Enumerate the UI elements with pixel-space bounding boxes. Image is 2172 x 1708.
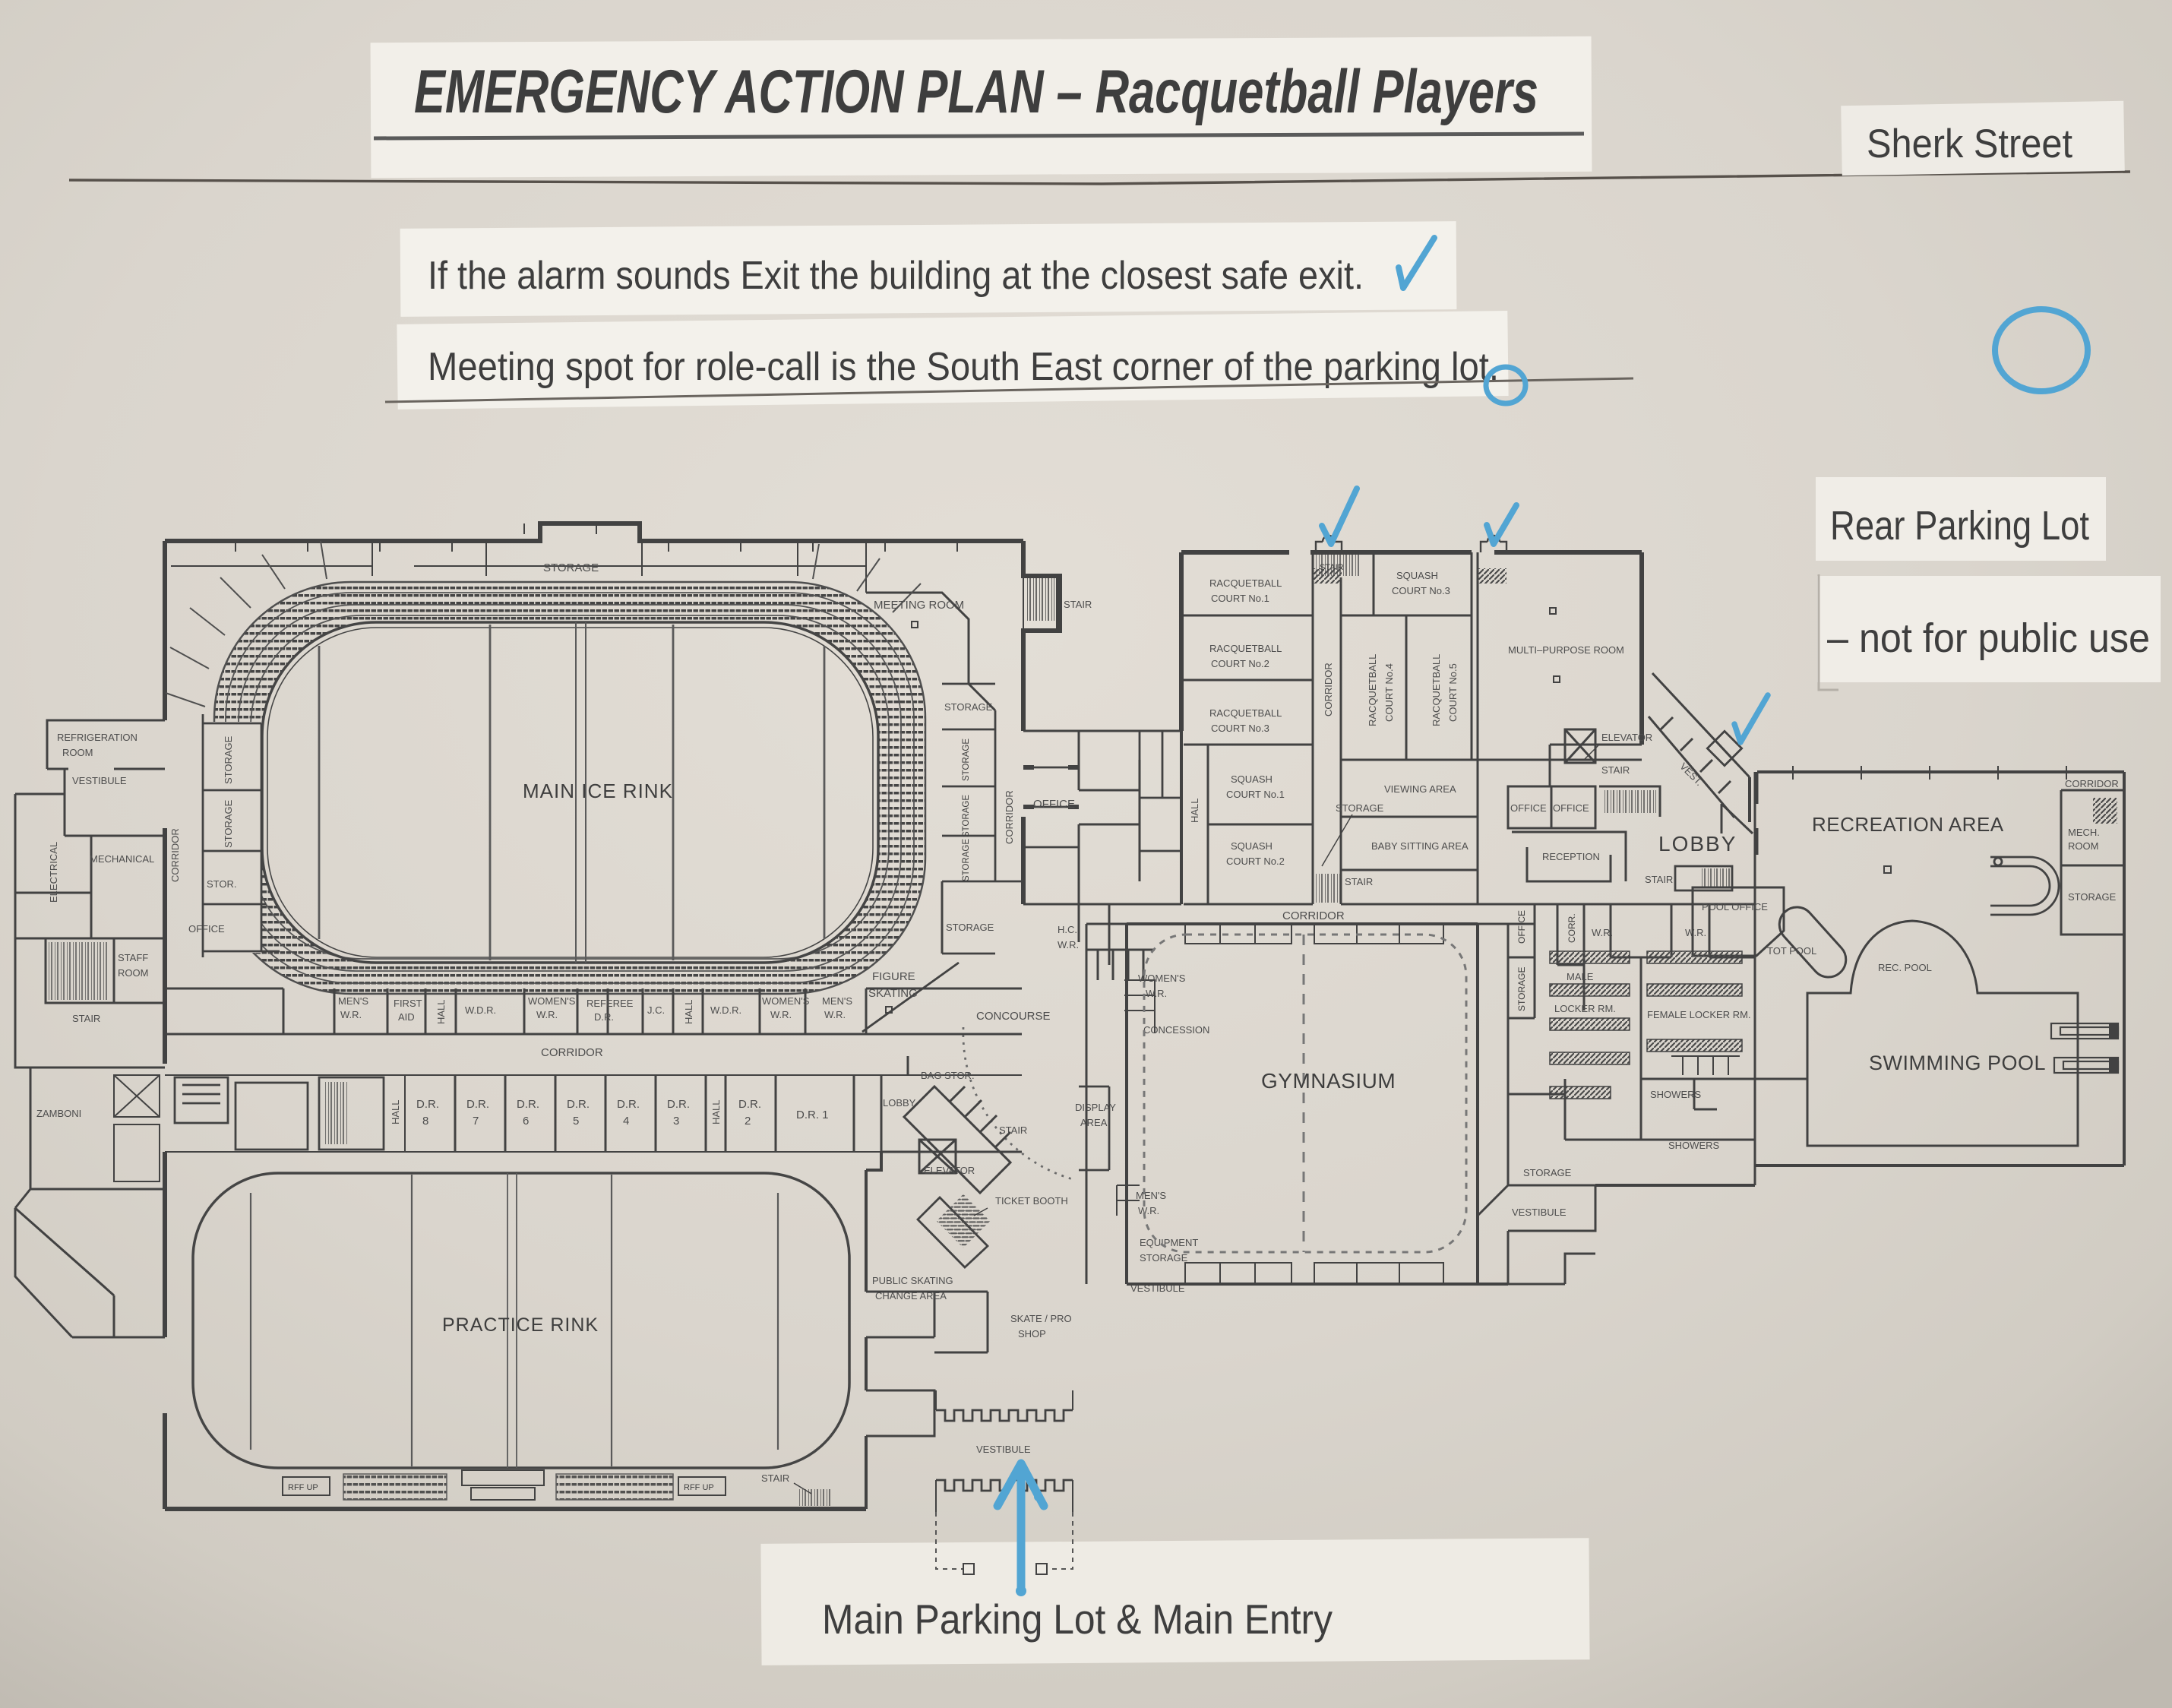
svg-text:SHOWERS: SHOWERS — [1650, 1089, 1702, 1100]
svg-text:W.R.: W.R. — [770, 1009, 792, 1020]
svg-text:RACQUETBALL: RACQUETBALL — [1209, 577, 1282, 589]
svg-text:PUBLIC SKATING: PUBLIC SKATING — [872, 1275, 953, 1286]
svg-text:STAIR: STAIR — [1645, 874, 1673, 885]
svg-text:WOMEN'S: WOMEN'S — [762, 995, 810, 1007]
svg-text:CONCESSION: CONCESSION — [1143, 1024, 1209, 1036]
svg-text:REFRIGERATION: REFRIGERATION — [57, 732, 138, 743]
svg-text:D.R.: D.R. — [594, 1011, 614, 1023]
svg-text:ROOM: ROOM — [2068, 840, 2098, 852]
svg-text:VESTIBULE: VESTIBULE — [976, 1444, 1031, 1455]
svg-text:MECH.: MECH. — [2068, 827, 2100, 838]
svg-text:CORRIDOR: CORRIDOR — [2065, 778, 2119, 789]
svg-text:W.D.R.: W.D.R. — [710, 1004, 741, 1016]
svg-text:W.R.: W.R. — [1138, 1205, 1159, 1216]
svg-text:W.R.: W.R. — [536, 1009, 558, 1020]
svg-text:CORRIDOR: CORRIDOR — [169, 828, 181, 882]
svg-text:STAIR: STAIR — [999, 1124, 1027, 1136]
svg-text:SKATE / PRO: SKATE / PRO — [1010, 1313, 1072, 1324]
svg-text:STORAGE: STORAGE — [223, 799, 234, 848]
svg-text:W.R.: W.R. — [1058, 939, 1079, 950]
svg-text:OFFICE: OFFICE — [188, 923, 225, 935]
svg-text:COURT No.1: COURT No.1 — [1226, 789, 1285, 800]
svg-text:STORAGE: STORAGE — [962, 739, 971, 781]
svg-text:7: 7 — [473, 1115, 479, 1128]
svg-text:AREA: AREA — [1080, 1117, 1108, 1128]
svg-text:W.R.: W.R. — [340, 1009, 362, 1020]
svg-text:MALE: MALE — [1567, 971, 1594, 982]
svg-text:6: 6 — [523, 1115, 529, 1128]
svg-text:OFFICE: OFFICE — [1033, 798, 1075, 811]
svg-text:5: 5 — [573, 1115, 579, 1128]
svg-text:ELEVATOR: ELEVATOR — [1601, 732, 1652, 743]
svg-text:VESTIBULE: VESTIBULE — [1512, 1207, 1567, 1218]
svg-text:OFFICE: OFFICE — [1553, 802, 1589, 814]
svg-text:CORR.: CORR. — [1567, 913, 1577, 943]
svg-text:OFFICE: OFFICE — [1516, 910, 1527, 944]
svg-text:FIGURE: FIGURE — [872, 970, 915, 983]
svg-text:RACQUETBALL: RACQUETBALL — [1209, 643, 1282, 654]
svg-text:D.R. 1: D.R. 1 — [796, 1109, 829, 1121]
svg-text:ROOM: ROOM — [62, 747, 93, 758]
svg-text:RFF UP: RFF UP — [288, 1483, 318, 1492]
svg-text:SWIMMING POOL: SWIMMING POOL — [1869, 1052, 2046, 1074]
svg-text:RECEPTION: RECEPTION — [1542, 851, 1600, 862]
svg-text:W.R.: W.R. — [1685, 927, 1706, 938]
svg-text:TICKET BOOTH: TICKET BOOTH — [995, 1195, 1068, 1207]
svg-text:TOT POOL: TOT POOL — [1767, 945, 1816, 957]
svg-text:MEN'S: MEN'S — [338, 995, 368, 1007]
svg-text:STORAGE: STORAGE — [543, 561, 599, 574]
svg-text:EMERGENCY ACTION PLAN – Racque: EMERGENCY ACTION PLAN – Racquetball Play… — [414, 58, 1538, 126]
svg-text:ZAMBONI: ZAMBONI — [36, 1108, 81, 1119]
svg-text:COURT No.1: COURT No.1 — [1211, 593, 1269, 604]
svg-text:CONCOURSE: CONCOURSE — [976, 1010, 1051, 1023]
svg-text:D.R.: D.R. — [517, 1098, 539, 1111]
svg-text:BAG STOR.: BAG STOR. — [921, 1070, 975, 1081]
svg-text:AID: AID — [398, 1011, 415, 1023]
svg-text:STORAGE: STORAGE — [1140, 1252, 1188, 1264]
svg-text:WOMEN'S: WOMEN'S — [528, 995, 576, 1007]
svg-text:STAFF: STAFF — [118, 952, 148, 963]
svg-text:SHOP: SHOP — [1018, 1328, 1046, 1340]
svg-text:ELECTRICAL: ELECTRICAL — [48, 842, 59, 903]
svg-text:STAIR: STAIR — [1601, 764, 1630, 776]
svg-text:HALL: HALL — [683, 999, 694, 1024]
svg-text:SQUASH: SQUASH — [1231, 840, 1273, 852]
svg-text:4: 4 — [623, 1115, 629, 1128]
svg-text:MULTI–PURPOSE ROOM: MULTI–PURPOSE ROOM — [1508, 644, 1624, 656]
svg-text:EQUIPMENT: EQUIPMENT — [1140, 1237, 1198, 1248]
svg-text:D.R.: D.R. — [466, 1098, 489, 1111]
svg-text:If the alarm sounds Exit the b: If the alarm sounds Exit the building at… — [428, 254, 1364, 298]
svg-text:LOBBY: LOBBY — [883, 1097, 916, 1109]
svg-text:D.R.: D.R. — [567, 1098, 590, 1111]
svg-text:REC. POOL: REC. POOL — [1878, 962, 1932, 973]
svg-text:CORRIDOR: CORRIDOR — [541, 1046, 603, 1059]
svg-text:W.R.: W.R. — [824, 1009, 846, 1020]
svg-text:OFFICE: OFFICE — [1510, 802, 1547, 814]
svg-text:LOBBY: LOBBY — [1658, 832, 1737, 856]
svg-text:CORRIDOR: CORRIDOR — [1282, 909, 1345, 922]
svg-text:STAIR: STAIR — [1345, 876, 1373, 887]
svg-text:Main Parking Lot & Main Entry: Main Parking Lot & Main Entry — [822, 1596, 1333, 1643]
svg-text:STORAGE: STORAGE — [944, 701, 993, 713]
svg-text:STORAGE: STORAGE — [1516, 967, 1527, 1011]
svg-text:W.D.R.: W.D.R. — [465, 1004, 496, 1016]
svg-text:STORAGE: STORAGE — [962, 839, 971, 881]
svg-text:STORAGE: STORAGE — [1523, 1167, 1572, 1178]
svg-text:CORRIDOR: CORRIDOR — [1323, 663, 1334, 716]
svg-text:COURT No.3: COURT No.3 — [1211, 723, 1269, 734]
svg-text:RECREATION AREA: RECREATION AREA — [1812, 813, 2004, 836]
svg-text:ELEVATOR: ELEVATOR — [924, 1165, 975, 1176]
svg-text:GYMNASIUM: GYMNASIUM — [1261, 1069, 1396, 1093]
svg-text:HALL: HALL — [710, 1099, 722, 1124]
svg-text:MEETING ROOM: MEETING ROOM — [874, 599, 964, 612]
svg-text:– not for public use: – not for public use — [1827, 615, 2150, 661]
svg-text:RACQUETBALL: RACQUETBALL — [1367, 654, 1378, 726]
svg-text:FIRST: FIRST — [394, 998, 422, 1009]
svg-text:STORAGE: STORAGE — [1336, 802, 1384, 814]
svg-text:Meeting spot for role-call is: Meeting spot for role-call is the South … — [428, 345, 1499, 389]
svg-text:W.R.: W.R. — [1146, 988, 1167, 999]
svg-text:VESTIBULE: VESTIBULE — [72, 775, 127, 786]
svg-text:STORAGE: STORAGE — [946, 922, 994, 933]
svg-text:Sherk Street: Sherk Street — [1867, 122, 2072, 166]
svg-text:STOR.: STOR. — [207, 878, 237, 890]
svg-text:ROOM: ROOM — [118, 967, 148, 979]
svg-text:RFF UP: RFF UP — [684, 1483, 714, 1492]
svg-text:STORAGE: STORAGE — [2068, 891, 2117, 903]
svg-text:3: 3 — [673, 1115, 679, 1128]
svg-text:MEN'S: MEN'S — [822, 995, 852, 1007]
svg-text:HALL: HALL — [1189, 798, 1200, 823]
svg-text:D.R.: D.R. — [416, 1098, 439, 1111]
svg-text:PRACTICE RINK: PRACTICE RINK — [442, 1314, 599, 1336]
svg-text:COURT No.4: COURT No.4 — [1383, 663, 1395, 722]
svg-text:Rear Parking Lot: Rear Parking Lot — [1830, 503, 2089, 549]
svg-text:BABY SITTING AREA: BABY SITTING AREA — [1371, 840, 1469, 852]
svg-text:W.R.: W.R. — [1592, 927, 1613, 938]
svg-text:FEMALE LOCKER RM.: FEMALE LOCKER RM. — [1647, 1009, 1751, 1020]
svg-text:CORRIDOR: CORRIDOR — [1004, 790, 1015, 844]
svg-text:D.R.: D.R. — [617, 1098, 640, 1111]
svg-text:STAIR: STAIR — [72, 1013, 100, 1024]
svg-text:D.R.: D.R. — [667, 1098, 690, 1111]
svg-text:D.R.: D.R. — [738, 1098, 761, 1111]
svg-text:2: 2 — [745, 1115, 751, 1128]
svg-text:STORAGE: STORAGE — [962, 795, 971, 837]
svg-text:H.C.: H.C. — [1058, 924, 1077, 935]
svg-text:STAIR: STAIR — [1064, 599, 1092, 610]
svg-text:HALL: HALL — [390, 1099, 401, 1124]
svg-text:COURT No.5: COURT No.5 — [1447, 663, 1459, 722]
svg-text:LOCKER RM.: LOCKER RM. — [1554, 1003, 1616, 1014]
svg-text:POOL OFFICE: POOL OFFICE — [1702, 901, 1768, 913]
svg-text:RACQUETBALL: RACQUETBALL — [1209, 707, 1282, 719]
svg-text:COURT No.2: COURT No.2 — [1226, 856, 1285, 867]
svg-text:SHOWERS: SHOWERS — [1668, 1140, 1720, 1151]
svg-text:J.C.: J.C. — [647, 1004, 665, 1016]
svg-text:RACQUETBALL: RACQUETBALL — [1431, 654, 1442, 726]
svg-text:SQUASH: SQUASH — [1231, 773, 1273, 785]
svg-text:8: 8 — [422, 1115, 428, 1128]
svg-text:MECHANICAL: MECHANICAL — [90, 853, 154, 865]
svg-text:STORAGE: STORAGE — [223, 735, 234, 784]
svg-text:MEN'S: MEN'S — [1136, 1190, 1166, 1201]
svg-text:MAIN ICE RINK: MAIN ICE RINK — [523, 780, 673, 802]
svg-text:SQUASH: SQUASH — [1396, 570, 1438, 581]
svg-text:COURT No.3: COURT No.3 — [1392, 585, 1450, 596]
svg-text:VIEWING AREA: VIEWING AREA — [1384, 783, 1456, 795]
svg-text:REFEREE: REFEREE — [586, 998, 634, 1009]
svg-text:COURT No.2: COURT No.2 — [1211, 658, 1269, 669]
svg-text:STAIR: STAIR — [761, 1472, 789, 1484]
svg-text:HALL: HALL — [435, 999, 447, 1024]
